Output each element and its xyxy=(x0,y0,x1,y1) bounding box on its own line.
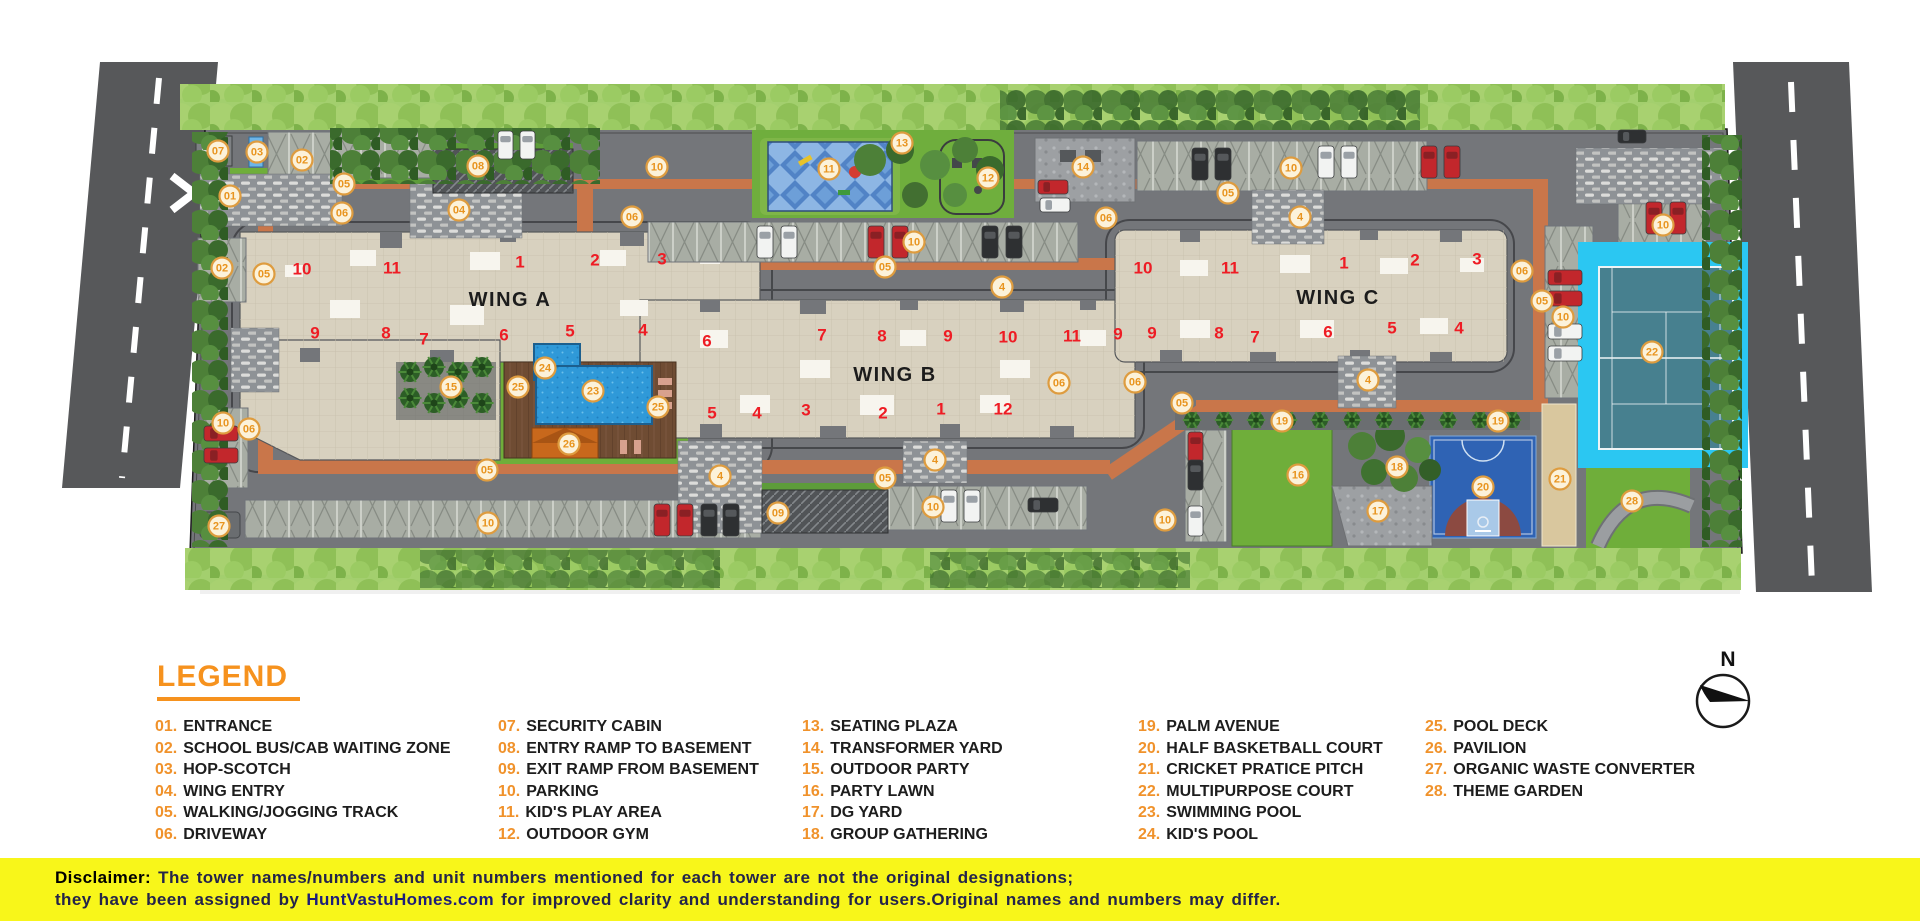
svg-text:22: 22 xyxy=(1646,347,1658,359)
plan-marker-02: 02 xyxy=(212,258,233,279)
plan-marker-04: 04 xyxy=(449,200,470,221)
plan-marker-10: 10 xyxy=(478,513,499,534)
unit-number: 11 xyxy=(383,259,401,278)
legend-item: 11.KID'S PLAY AREA xyxy=(498,802,759,824)
unit-number: 11 xyxy=(1221,259,1239,278)
svg-text:05: 05 xyxy=(879,262,891,274)
unit-number: 1 xyxy=(515,253,524,272)
unit-number: 3 xyxy=(657,250,666,269)
unit-number: 10 xyxy=(293,260,312,279)
legend-item-label: HALF BASKETBALL COURT xyxy=(1166,740,1383,757)
unit-number: 7 xyxy=(817,326,826,345)
legend-item-number: 03. xyxy=(155,761,177,778)
plan-marker-23: 23 xyxy=(583,381,604,402)
svg-text:4: 4 xyxy=(1365,375,1372,387)
legend-item: 03.HOP-SCOTCH xyxy=(155,759,451,781)
disclaimer-bar: Disclaimer: The tower names/numbers and … xyxy=(0,858,1920,921)
legend-item: 28.THEME GARDEN xyxy=(1425,781,1695,803)
svg-text:01: 01 xyxy=(224,191,236,203)
legend-item: 27.ORGANIC WASTE CONVERTER xyxy=(1425,759,1695,781)
legend-item-label: EXIT RAMP FROM BASEMENT xyxy=(526,761,759,778)
plan-marker-24: 24 xyxy=(535,358,556,379)
legend-item-number: 07. xyxy=(498,718,520,735)
svg-text:14: 14 xyxy=(1077,162,1090,174)
plan-marker-21: 21 xyxy=(1550,469,1571,490)
legend-item-number: 24. xyxy=(1138,826,1160,843)
unit-number: 9 xyxy=(310,324,319,343)
legend-item-number: 22. xyxy=(1138,783,1160,800)
plan-marker-05: 05 xyxy=(875,257,896,278)
car-white xyxy=(498,131,513,159)
legend-item-number: 17. xyxy=(802,804,824,821)
svg-text:24: 24 xyxy=(539,363,552,375)
unit-number: 1 xyxy=(1339,254,1348,273)
legend-item-number: 13. xyxy=(802,718,824,735)
legend-item: 09.EXIT RAMP FROM BASEMENT xyxy=(498,759,759,781)
legend-item-label: SECURITY CABIN xyxy=(526,718,662,735)
unit-number: 5 xyxy=(1387,319,1396,338)
legend-item: 26.PAVILION xyxy=(1425,738,1695,760)
plan-marker-07: 07 xyxy=(208,141,229,162)
unit-number: 6 xyxy=(1323,323,1332,342)
unit-number: 2 xyxy=(1410,251,1419,270)
svg-text:4: 4 xyxy=(999,282,1006,294)
wing-label: WING B xyxy=(853,364,936,386)
unit-number: 8 xyxy=(877,327,886,346)
plan-marker-08: 08 xyxy=(468,156,489,177)
plan-marker-05: 05 xyxy=(875,468,896,489)
svg-text:28: 28 xyxy=(1626,496,1638,508)
plan-marker-25: 25 xyxy=(648,397,669,418)
plan-marker-05: 05 xyxy=(334,174,355,195)
car-dark xyxy=(982,226,998,258)
svg-text:19: 19 xyxy=(1492,416,1504,428)
legend-item-number: 21. xyxy=(1138,761,1160,778)
disclaimer-line2: they have been assigned by HuntVastuHome… xyxy=(55,889,1920,911)
plan-marker-28: 28 xyxy=(1622,491,1643,512)
legend-item: 10.PARKING xyxy=(498,781,759,803)
plan-marker-20: 20 xyxy=(1473,477,1494,498)
legend-item-label: POOL DECK xyxy=(1453,718,1548,735)
plan-marker-4: 4 xyxy=(925,450,946,471)
svg-text:10: 10 xyxy=(1285,163,1297,175)
master-plan: WING AWING BWING C 101112398765467891011… xyxy=(0,0,1920,660)
legend-item-label: PAVILION xyxy=(1453,740,1526,757)
legend-item: 08.ENTRY RAMP TO BASEMENT xyxy=(498,738,759,760)
plan-marker-01: 01 xyxy=(220,186,241,207)
unit-number: 4 xyxy=(752,404,762,423)
legend-item: 25.POOL DECK xyxy=(1425,716,1695,738)
car-red xyxy=(204,448,238,463)
unit-number: 9 xyxy=(943,327,952,346)
legend-column: 13.SEATING PLAZA14.TRANSFORMER YARD15.OU… xyxy=(802,716,1003,846)
svg-text:26: 26 xyxy=(563,439,575,451)
svg-text:13: 13 xyxy=(896,138,908,150)
svg-text:05: 05 xyxy=(481,465,493,477)
car-red xyxy=(654,504,670,536)
svg-text:06: 06 xyxy=(1100,213,1112,225)
legend-title: LEGEND xyxy=(157,660,300,701)
svg-text:19: 19 xyxy=(1276,416,1288,428)
legend-item-number: 28. xyxy=(1425,783,1447,800)
plan-marker-05: 05 xyxy=(1172,393,1193,414)
plan-marker-06: 06 xyxy=(332,203,353,224)
plan-marker-10: 10 xyxy=(1553,307,1574,328)
legend-item-number: 26. xyxy=(1425,740,1447,757)
unit-number: 7 xyxy=(1250,328,1259,347)
unit-number: 12 xyxy=(994,400,1013,419)
unit-number: 6 xyxy=(499,326,508,345)
legend-item-number: 11. xyxy=(498,804,519,821)
plan-marker-15: 15 xyxy=(441,377,462,398)
svg-text:23: 23 xyxy=(587,386,599,398)
svg-text:20: 20 xyxy=(1477,482,1489,494)
legend-item-number: 04. xyxy=(155,783,177,800)
legend-item-label: WING ENTRY xyxy=(183,783,285,800)
plan-marker-06: 06 xyxy=(1096,208,1117,229)
svg-text:10: 10 xyxy=(1159,515,1171,527)
legend-item: 15.OUTDOOR PARTY xyxy=(802,759,1003,781)
svg-text:25: 25 xyxy=(652,402,664,414)
svg-text:12: 12 xyxy=(982,173,994,185)
car-dark xyxy=(701,504,717,536)
legend-item-label: OUTDOOR PARTY xyxy=(830,761,969,778)
car-white xyxy=(1040,198,1070,212)
legend-column: 07.SECURITY CABIN08.ENTRY RAMP TO BASEME… xyxy=(498,716,759,846)
disclaimer-heading: Disclaimer: xyxy=(55,868,151,887)
svg-text:06: 06 xyxy=(243,424,255,436)
wing-label: WING C xyxy=(1296,287,1379,309)
legend-item-label: KID'S PLAY AREA xyxy=(525,804,662,821)
plan-marker-06: 06 xyxy=(1125,372,1146,393)
legend-item: 22.MULTIPURPOSE COURT xyxy=(1138,781,1383,803)
car-red xyxy=(1548,270,1582,285)
legend-item-number: 10. xyxy=(498,783,520,800)
unit-number: 9 xyxy=(1113,325,1122,344)
legend-item-label: GROUP GATHERING xyxy=(830,826,988,843)
legend-item-number: 18. xyxy=(802,826,824,843)
svg-text:16: 16 xyxy=(1292,470,1304,482)
disclaimer-line1: Disclaimer: The tower names/numbers and … xyxy=(55,867,1920,889)
legend-item: 16.PARTY LAWN xyxy=(802,781,1003,803)
car-dark xyxy=(1192,148,1208,180)
wing-label: WING A xyxy=(469,289,552,311)
legend-item: 23.SWIMMING POOL xyxy=(1138,802,1383,824)
legend-item: 20.HALF BASKETBALL COURT xyxy=(1138,738,1383,760)
svg-text:10: 10 xyxy=(1657,220,1669,232)
plan-marker-05: 05 xyxy=(477,460,498,481)
car-red xyxy=(1444,146,1460,178)
compass: N xyxy=(1684,646,1770,732)
car-white xyxy=(1548,346,1582,361)
plan-marker-05: 05 xyxy=(1218,183,1239,204)
legend-item-number: 05. xyxy=(155,804,177,821)
plan-marker-14: 14 xyxy=(1073,157,1094,178)
car-white xyxy=(781,226,797,258)
svg-text:05: 05 xyxy=(879,473,891,485)
svg-text:10: 10 xyxy=(1557,312,1569,324)
plan-marker-10: 10 xyxy=(904,232,925,253)
svg-text:06: 06 xyxy=(336,208,348,220)
plan-marker-10: 10 xyxy=(923,497,944,518)
plan-marker-10: 10 xyxy=(1653,215,1674,236)
legend-item-label: KID'S POOL xyxy=(1166,826,1258,843)
unit-number: 6 xyxy=(702,332,711,351)
car-dark xyxy=(1215,148,1231,180)
svg-text:25: 25 xyxy=(512,382,524,394)
svg-text:11: 11 xyxy=(823,164,835,176)
legend-item-number: 08. xyxy=(498,740,520,757)
plan-marker-03: 03 xyxy=(247,142,268,163)
plan-marker-4: 4 xyxy=(1358,370,1379,391)
car-white xyxy=(1318,146,1334,178)
plan-marker-19: 19 xyxy=(1488,411,1509,432)
svg-text:03: 03 xyxy=(251,147,263,159)
legend-item-number: 16. xyxy=(802,783,824,800)
plan-marker-05: 05 xyxy=(254,264,275,285)
svg-text:4: 4 xyxy=(717,471,724,483)
legend-item-number: 20. xyxy=(1138,740,1160,757)
plan-marker-4: 4 xyxy=(1290,207,1311,228)
legend-item-label: THEME GARDEN xyxy=(1453,783,1583,800)
legend-item: 18.GROUP GATHERING xyxy=(802,824,1003,846)
legend-column: 25.POOL DECK26.PAVILION27.ORGANIC WASTE … xyxy=(1425,716,1695,802)
unit-number: 10 xyxy=(999,328,1018,347)
plan-marker-10: 10 xyxy=(1281,158,1302,179)
svg-text:10: 10 xyxy=(217,418,229,430)
legend-item: 17.DG YARD xyxy=(802,802,1003,824)
svg-text:17: 17 xyxy=(1372,506,1384,518)
plan-marker-09: 09 xyxy=(768,503,789,524)
unit-number: 2 xyxy=(590,251,599,270)
brand-name: HuntVastuHomes.com xyxy=(306,890,494,909)
plan-marker-22: 22 xyxy=(1642,342,1663,363)
svg-text:05: 05 xyxy=(258,269,270,281)
svg-text:06: 06 xyxy=(626,212,638,224)
legend-item-label: CRICKET PRATICE PITCH xyxy=(1166,761,1363,778)
car-red xyxy=(677,504,693,536)
plan-marker-06: 06 xyxy=(239,419,260,440)
plan-marker-06: 06 xyxy=(1512,261,1533,282)
plan-marker-26: 26 xyxy=(559,434,580,455)
svg-text:07: 07 xyxy=(212,146,224,158)
svg-text:02: 02 xyxy=(296,155,308,167)
car-white xyxy=(1188,506,1203,536)
compass-north-label: N xyxy=(1720,648,1735,671)
unit-number: 7 xyxy=(419,330,428,349)
plan-marker-4: 4 xyxy=(710,466,731,487)
svg-text:09: 09 xyxy=(772,508,784,520)
legend-item-number: 06. xyxy=(155,826,177,843)
car-red xyxy=(1038,180,1068,194)
unit-number: 11 xyxy=(1063,327,1081,346)
svg-text:04: 04 xyxy=(453,205,466,217)
car-red xyxy=(1188,432,1203,462)
compass-needle-icon xyxy=(1700,685,1750,702)
legend-item-label: HOP-SCOTCH xyxy=(183,761,291,778)
legend-item-label: DG YARD xyxy=(830,804,902,821)
svg-text:05: 05 xyxy=(338,179,350,191)
legend-item: 07.SECURITY CABIN xyxy=(498,716,759,738)
legend-item: 19.PALM AVENUE xyxy=(1138,716,1383,738)
legend-item: 06.DRIVEWAY xyxy=(155,824,451,846)
legend-item: 04.WING ENTRY xyxy=(155,781,451,803)
plan-marker-06: 06 xyxy=(1049,373,1070,394)
car-white xyxy=(520,131,535,159)
legend-item-label: DRIVEWAY xyxy=(183,826,267,843)
unit-number: 2 xyxy=(878,404,887,423)
plan-marker-06: 06 xyxy=(622,207,643,228)
unit-number: 3 xyxy=(1472,250,1481,269)
legend-item-number: 01. xyxy=(155,718,177,735)
unit-number: 8 xyxy=(381,324,390,343)
legend-item-number: 19. xyxy=(1138,718,1160,735)
car-dark xyxy=(1028,498,1058,512)
svg-text:10: 10 xyxy=(908,237,920,249)
legend-item-number: 02. xyxy=(155,740,177,757)
svg-text:27: 27 xyxy=(213,521,225,533)
legend-column: 19.PALM AVENUE20.HALF BASKETBALL COURT21… xyxy=(1138,716,1383,846)
legend-item-number: 27. xyxy=(1425,761,1447,778)
plan-marker-4: 4 xyxy=(992,277,1013,298)
svg-text:18: 18 xyxy=(1391,462,1403,474)
svg-text:4: 4 xyxy=(1297,212,1304,224)
svg-text:10: 10 xyxy=(927,502,939,514)
car-red xyxy=(1421,146,1437,178)
right-road xyxy=(1733,62,1872,592)
svg-text:10: 10 xyxy=(482,518,494,530)
plan-marker-10: 10 xyxy=(647,157,668,178)
legend-item: 13.SEATING PLAZA xyxy=(802,716,1003,738)
plan-marker-12: 12 xyxy=(978,168,999,189)
unit-number: 1 xyxy=(936,400,945,419)
legend-item: 21.CRICKET PRATICE PITCH xyxy=(1138,759,1383,781)
svg-text:21: 21 xyxy=(1554,474,1566,486)
car-white xyxy=(964,490,980,522)
site-plan-page: WING AWING BWING C 101112398765467891011… xyxy=(0,0,1920,921)
legend-item: 01.ENTRANCE xyxy=(155,716,451,738)
legend-item-number: 09. xyxy=(498,761,520,778)
svg-text:06: 06 xyxy=(1053,378,1065,390)
legend-item-label: OUTDOOR GYM xyxy=(526,826,649,843)
legend-item-label: PARKING xyxy=(526,783,599,800)
car-dark xyxy=(1618,130,1646,143)
legend-item-number: 15. xyxy=(802,761,824,778)
plan-marker-25: 25 xyxy=(508,377,529,398)
legend-item-label: PARTY LAWN xyxy=(830,783,934,800)
legend-item-number: 25. xyxy=(1425,718,1447,735)
unit-number: 8 xyxy=(1214,324,1223,343)
svg-text:06: 06 xyxy=(1516,266,1528,278)
unit-number: 9 xyxy=(1147,324,1156,343)
plan-marker-13: 13 xyxy=(892,133,913,154)
svg-text:08: 08 xyxy=(472,161,484,173)
svg-text:06: 06 xyxy=(1129,377,1141,389)
unit-number: 5 xyxy=(565,322,574,341)
plan-marker-05: 05 xyxy=(1532,291,1553,312)
legend-item-label: SCHOOL BUS/CAB WAITING ZONE xyxy=(183,740,450,757)
legend-item: 14.TRANSFORMER YARD xyxy=(802,738,1003,760)
unit-number: 10 xyxy=(1134,259,1153,278)
legend-item-number: 23. xyxy=(1138,804,1160,821)
unit-number: 4 xyxy=(1454,319,1464,338)
legend-column: 01.ENTRANCE02.SCHOOL BUS/CAB WAITING ZON… xyxy=(155,716,451,846)
car-dark xyxy=(1006,226,1022,258)
plan-marker-10: 10 xyxy=(213,413,234,434)
legend-item: 12.OUTDOOR GYM xyxy=(498,824,759,846)
plan-marker-11: 11 xyxy=(819,159,840,180)
legend-item: 05.WALKING/JOGGING TRACK xyxy=(155,802,451,824)
legend-item-number: 12. xyxy=(498,826,520,843)
svg-text:05: 05 xyxy=(1176,398,1188,410)
legend-item-label: ORGANIC WASTE CONVERTER xyxy=(1453,761,1695,778)
car-dark xyxy=(723,504,739,536)
car-red xyxy=(868,226,884,258)
legend-item: 24.KID'S POOL xyxy=(1138,824,1383,846)
svg-text:15: 15 xyxy=(445,382,457,394)
legend-item-number: 14. xyxy=(802,740,824,757)
car-white xyxy=(757,226,773,258)
legend-item-label: MULTIPURPOSE COURT xyxy=(1166,783,1353,800)
svg-text:4: 4 xyxy=(932,455,939,467)
svg-text:10: 10 xyxy=(651,162,663,174)
svg-text:02: 02 xyxy=(216,263,228,275)
plan-marker-18: 18 xyxy=(1387,457,1408,478)
unit-number: 4 xyxy=(638,321,648,340)
legend-item-label: SEATING PLAZA xyxy=(830,718,958,735)
unit-number: 3 xyxy=(801,401,810,420)
legend-item-label: SWIMMING POOL xyxy=(1166,804,1301,821)
svg-text:05: 05 xyxy=(1536,296,1548,308)
legend-item-label: ENTRANCE xyxy=(183,718,272,735)
legend-item-label: TRANSFORMER YARD xyxy=(830,740,1002,757)
svg-text:05: 05 xyxy=(1222,188,1234,200)
plan-marker-17: 17 xyxy=(1368,501,1389,522)
car-white xyxy=(1341,146,1357,178)
legend-item-label: PALM AVENUE xyxy=(1166,718,1279,735)
plan-marker-10: 10 xyxy=(1155,510,1176,531)
plan-marker-16: 16 xyxy=(1288,465,1309,486)
legend-item: 02.SCHOOL BUS/CAB WAITING ZONE xyxy=(155,738,451,760)
unit-number: 5 xyxy=(707,404,716,423)
plan-marker-27: 27 xyxy=(209,516,230,537)
car-dark xyxy=(1188,460,1203,490)
plan-marker-02: 02 xyxy=(292,150,313,171)
legend-item-label: WALKING/JOGGING TRACK xyxy=(183,804,398,821)
legend-item-label: ENTRY RAMP TO BASEMENT xyxy=(526,740,751,757)
plan-marker-19: 19 xyxy=(1272,411,1293,432)
